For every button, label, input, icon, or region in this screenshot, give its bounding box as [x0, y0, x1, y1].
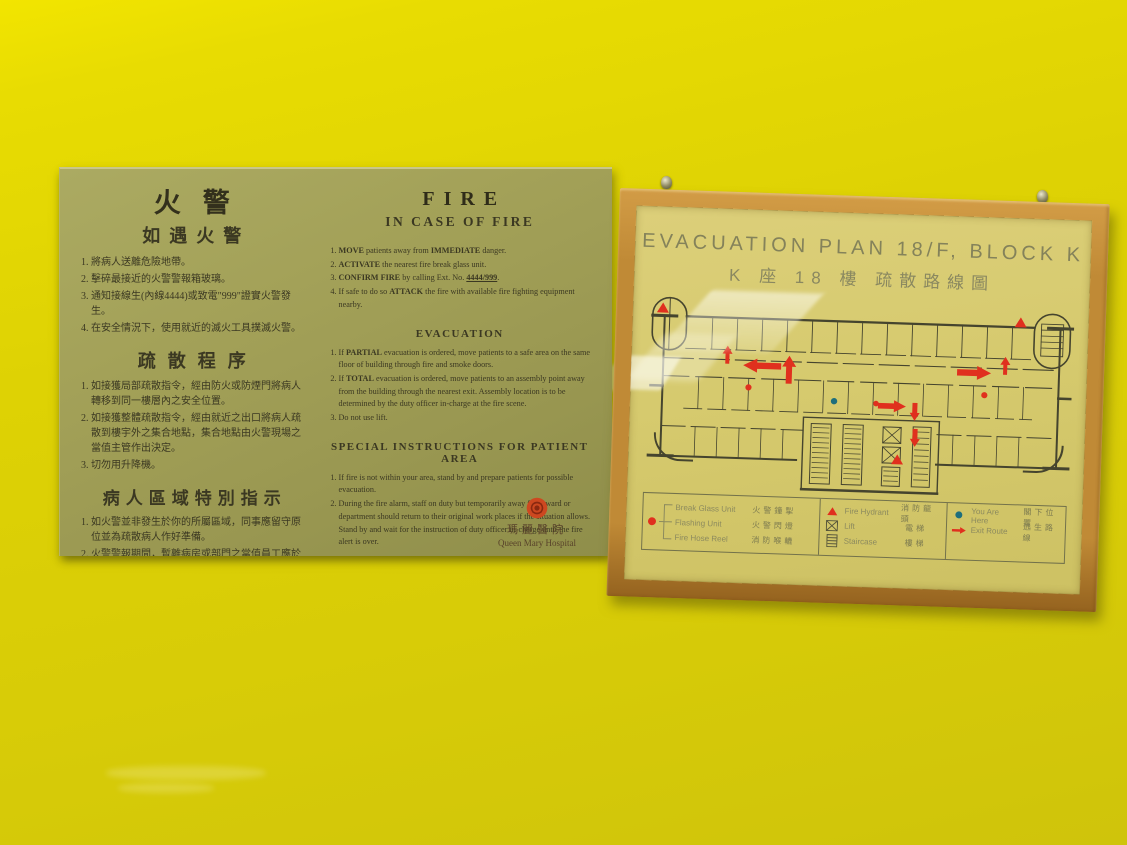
chinese-column: 火警 如遇火警 將病人送離危險地帶。 擊碎最接近的火警警報箱玻璃。 通知接線生(…	[74, 175, 310, 552]
exit-route-arrow-icon	[952, 526, 966, 534]
fire-hydrant-icon	[828, 507, 838, 515]
legend-column-2: Fire Hydrant消防龍頭 Lift電梯 Staircase樓梯	[819, 499, 947, 559]
stairwell-right	[1033, 314, 1071, 369]
evacuation-plan-paper: EVACUATION PLAN 18/F, BLOCK K K 座 18 樓 疏…	[624, 206, 1092, 595]
fire-hydrant-marker	[891, 454, 903, 464]
patient-title-chinese: 病人區域特別指示	[74, 484, 310, 509]
central-core	[801, 417, 939, 493]
fire-subtitle-chinese: 如遇火警	[74, 222, 310, 248]
evacuation-steps-english: If PARTIAL evacuation is ordered, move p…	[322, 347, 598, 425]
list-item: 火警警報期間，暫離病房或部門之當值員工應於情況許可下返回其所屬之工作地點，留守原…	[91, 547, 310, 556]
evacuation-plan-frame: EVACUATION PLAN 18/F, BLOCK K K 座 18 樓 疏…	[606, 188, 1109, 612]
english-column: FIRE IN CASE OF FIRE MOVE patients away …	[322, 175, 598, 552]
list-item: CONFIRM FIRE by calling Ext. No. 4444/99…	[339, 272, 598, 285]
list-item: 如接獲局部疏散指令，經由防火或防煙門將病人轉移到同一樓層內之安全位置。	[91, 379, 310, 409]
lift-icon	[826, 520, 838, 531]
list-item: If TOTAL evacuation is ordered, move pat…	[339, 373, 598, 411]
fire-title-chinese: 火警	[74, 181, 310, 220]
staircase-icon	[826, 534, 837, 547]
legend-item: Staircase樓梯	[824, 533, 940, 552]
list-item: 如火警並非發生於你的所屬區域，同事應留守原位並為疏散病人作好準備。	[91, 515, 310, 545]
alarm-steps-english: MOVE patients away from IMMEDIATE danger…	[322, 245, 598, 312]
list-item: 切勿用升降機。	[91, 458, 310, 473]
exit-arrow-right	[878, 400, 906, 413]
evacuation-title-english: EVACUATION	[322, 328, 598, 340]
list-item: Do not use lift.	[339, 412, 598, 425]
legend-item: Fire Hose Reel消防喉轆	[674, 530, 814, 550]
exit-arrow-down	[909, 403, 920, 421]
legend-column-1: Break Glass Unit火警鐘掣 Flashing Unit火警閃燈 F…	[642, 493, 821, 555]
fire-notice-board: 火警 如遇火警 將病人送離危險地帶。 擊碎最接近的火警警報箱玻璃。 通知接線生(…	[59, 167, 612, 556]
list-item: 將病人送離危險地帶。	[91, 255, 310, 270]
break-glass-marker	[981, 392, 987, 398]
evacuation-title-chinese: 疏散程序	[74, 347, 310, 373]
wall-smudge	[118, 783, 214, 793]
break-glass-icon	[648, 517, 656, 525]
hospital-name-english: Queen Mary Hospital	[498, 538, 576, 548]
you-are-here-marker	[831, 398, 838, 405]
list-item: ACTIVATE the nearest fire break glass un…	[339, 259, 598, 272]
wall-hook-left	[661, 176, 672, 189]
fire-subtitle-english: IN CASE OF FIRE	[322, 214, 598, 230]
list-item: 擊碎最接近的火警警報箱玻璃。	[91, 272, 310, 287]
plan-legend: Break Glass Unit火警鐘掣 Flashing Unit火警閃燈 F…	[641, 492, 1067, 564]
you-are-here-icon	[956, 511, 963, 518]
bracket-icon	[658, 497, 673, 545]
wall-smudge	[106, 766, 266, 780]
patient-title-english: SPECIAL INSTRUCTIONS FOR PATIENT AREA	[322, 441, 598, 465]
stairwell-left	[652, 297, 688, 350]
list-item: MOVE patients away from IMMEDIATE danger…	[339, 245, 598, 258]
exit-arrow-up	[722, 345, 733, 363]
alarm-steps-chinese: 將病人送離危險地帶。 擊碎最接近的火警警報箱玻璃。 通知接線生(內線4444)或…	[74, 255, 310, 336]
floor-plan-drawing	[635, 291, 1081, 501]
hospital-signature: 瑪麗醫院 Queen Mary Hospital	[498, 497, 576, 548]
yellow-wall: { "colors":{"marker_red":"#e0301e","you_…	[0, 0, 1127, 845]
list-item: 如接獲整體疏散指令，經由就近之出口將病人疏散到樓宇外之集合地點，集合地點由火警現…	[91, 411, 310, 456]
fire-hydrant-marker	[1015, 317, 1027, 327]
exit-arrow-up	[1000, 357, 1011, 375]
list-item: 通知接線生(內線4444)或致電"999"證實火警發生。	[91, 289, 310, 319]
list-item: 在安全情況下，使用就近的滅火工具撲滅火警。	[91, 321, 310, 336]
patient-steps-chinese: 如火警並非發生於你的所屬區域，同事應留守原位並為疏散病人作好準備。 火警警報期間…	[74, 515, 310, 556]
evacuation-steps-chinese: 如接獲局部疏散指令，經由防火或防煙門將病人轉移到同一樓層內之安全位置。 如接獲整…	[74, 379, 310, 473]
hospital-logo-icon	[526, 497, 548, 519]
list-item: If PARTIAL evacuation is ordered, move p…	[339, 347, 598, 372]
break-glass-marker	[745, 384, 751, 390]
hospital-name-chinese: 瑪麗醫院	[498, 521, 576, 537]
legend-column-3: You Are Here閣下位置 Exit Route逃生路線	[946, 503, 1066, 563]
fire-hydrant-marker	[657, 302, 669, 312]
list-item: If safe to do so ATTACK the fire with av…	[339, 286, 598, 311]
fire-title-english: FIRE	[322, 188, 598, 211]
list-item: If fire is not within your area, stand b…	[339, 472, 598, 497]
